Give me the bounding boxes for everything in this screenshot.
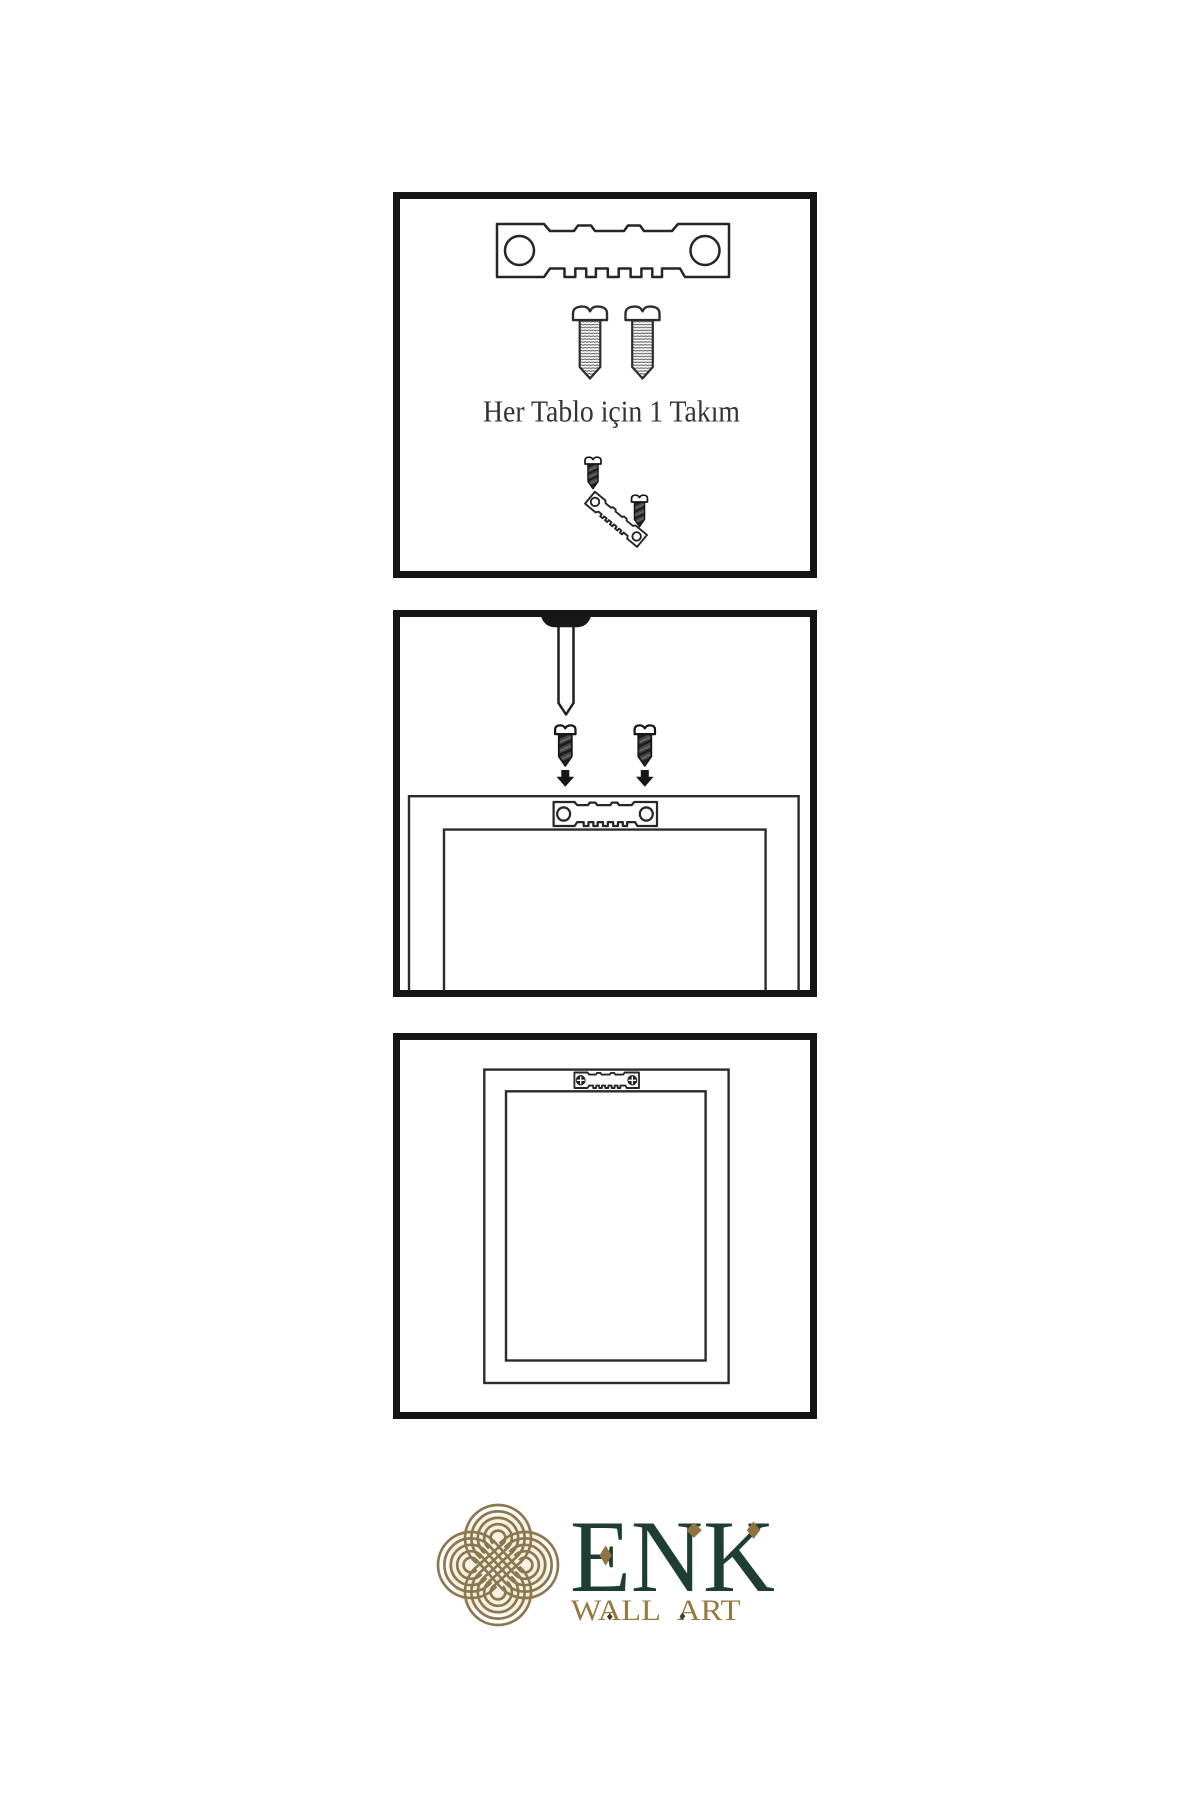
svg-text:Her Tablo için 1 Takım: Her Tablo için 1 Takım: [483, 395, 740, 429]
svg-text:ART: ART: [677, 1595, 741, 1627]
svg-text:WALL: WALL: [571, 1595, 661, 1627]
